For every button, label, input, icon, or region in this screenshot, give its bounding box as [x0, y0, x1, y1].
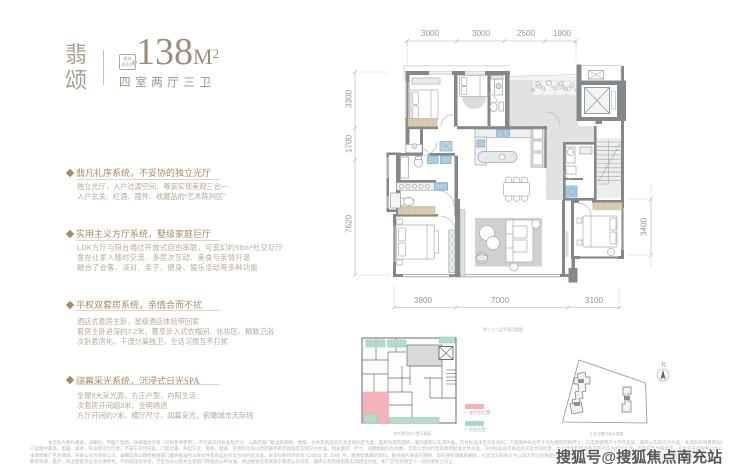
svg-text:3800: 3800	[414, 296, 433, 305]
svg-text:3300: 3300	[345, 89, 354, 108]
svg-text:1900: 1900	[553, 29, 572, 38]
svg-text:3000: 3000	[421, 29, 440, 38]
svg-text:3100: 3100	[585, 296, 604, 305]
svg-text:1700: 1700	[345, 134, 354, 153]
svg-text:北: 北	[661, 361, 666, 368]
svg-text:2500: 2500	[517, 29, 536, 38]
svg-text:7620: 7620	[345, 214, 354, 233]
svg-text:7000: 7000	[491, 296, 510, 305]
svg-text:3400: 3400	[640, 217, 649, 236]
svg-text:3000: 3000	[472, 29, 491, 38]
